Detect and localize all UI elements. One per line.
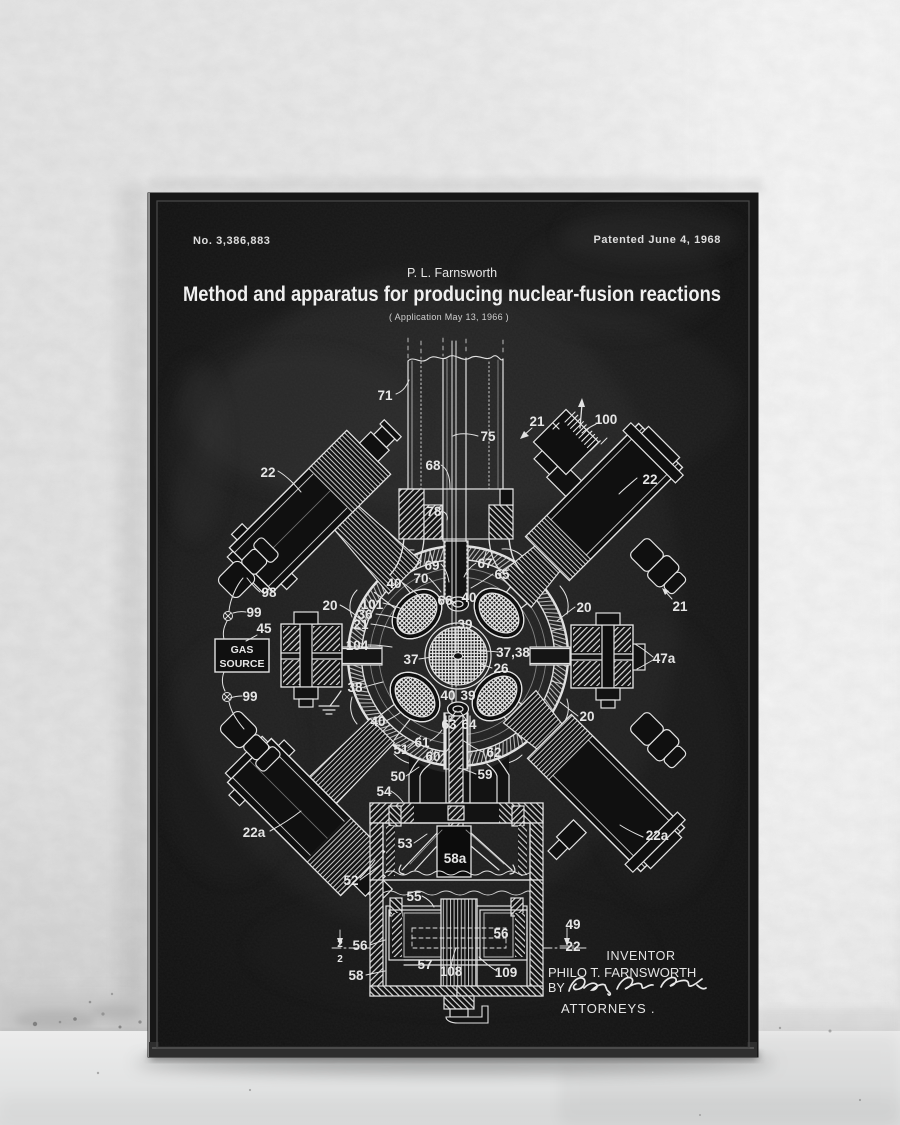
svg-text:104: 104 — [346, 638, 369, 653]
svg-text:65: 65 — [494, 567, 510, 582]
svg-text:71: 71 — [377, 388, 393, 403]
svg-text:Patented June 4, 1968: Patented June 4, 1968 — [593, 234, 721, 246]
svg-text:P. L. Farnsworth: P. L. Farnsworth — [407, 266, 497, 280]
svg-text:54: 54 — [376, 784, 392, 799]
svg-text:20: 20 — [579, 709, 594, 724]
svg-text:70: 70 — [413, 571, 428, 586]
svg-text:63: 63 — [441, 717, 457, 732]
svg-text:49: 49 — [565, 917, 580, 932]
svg-text:2: 2 — [337, 954, 343, 965]
svg-text:58a: 58a — [444, 851, 467, 866]
svg-text:68: 68 — [425, 458, 441, 473]
svg-text:37,38: 37,38 — [496, 645, 530, 660]
svg-text:40: 40 — [370, 714, 385, 729]
svg-text:39: 39 — [457, 617, 472, 632]
svg-text:66: 66 — [437, 593, 453, 608]
svg-text:56: 56 — [352, 938, 368, 953]
svg-text:55: 55 — [406, 889, 422, 904]
svg-text:40: 40 — [440, 688, 455, 703]
svg-text:75: 75 — [480, 429, 496, 444]
svg-text:61: 61 — [414, 735, 430, 750]
svg-text:45: 45 — [256, 621, 272, 636]
svg-text:51: 51 — [393, 742, 409, 757]
svg-text:No. 3,386,883: No. 3,386,883 — [193, 235, 271, 247]
svg-text:22: 22 — [642, 472, 657, 487]
svg-text:52: 52 — [343, 873, 358, 888]
svg-text:Method and apparatus for produ: Method and apparatus for producing nucle… — [183, 283, 721, 306]
svg-text:59: 59 — [477, 767, 492, 782]
svg-text:78: 78 — [426, 504, 442, 519]
svg-text:BY: BY — [548, 981, 565, 995]
svg-text:58: 58 — [348, 968, 364, 983]
svg-text:62: 62 — [486, 745, 501, 760]
svg-text:38: 38 — [347, 680, 363, 695]
svg-text:20: 20 — [322, 598, 337, 613]
svg-text:98: 98 — [261, 585, 277, 600]
svg-text:INVENTOR: INVENTOR — [606, 949, 675, 963]
svg-text:64: 64 — [461, 717, 477, 732]
svg-text:99: 99 — [242, 689, 257, 704]
svg-text:40: 40 — [461, 590, 476, 605]
svg-text:26: 26 — [493, 661, 509, 676]
svg-text:21: 21 — [529, 414, 545, 429]
svg-text:53: 53 — [397, 836, 413, 851]
svg-text:GAS: GAS — [231, 644, 254, 656]
svg-text:99: 99 — [246, 605, 261, 620]
svg-text:ATTORNEYS .: ATTORNEYS . — [561, 1001, 655, 1016]
svg-text:22a: 22a — [243, 825, 266, 840]
svg-text:37: 37 — [403, 652, 418, 667]
svg-text:100: 100 — [595, 412, 618, 427]
svg-text:20: 20 — [576, 600, 591, 615]
svg-text:2: 2 — [337, 939, 343, 950]
svg-text:108: 108 — [440, 964, 463, 979]
svg-text:( Application May 13, 1966 ): ( Application May 13, 1966 ) — [389, 312, 509, 322]
svg-text:109: 109 — [495, 965, 518, 980]
svg-text:39: 39 — [460, 688, 475, 703]
svg-text:21: 21 — [672, 599, 688, 614]
svg-text:47a: 47a — [653, 651, 676, 666]
svg-text:60: 60 — [425, 749, 440, 764]
svg-text:SOURCE: SOURCE — [220, 658, 265, 670]
svg-text:22: 22 — [260, 465, 275, 480]
svg-text:50: 50 — [390, 769, 405, 784]
svg-text:22: 22 — [565, 939, 580, 954]
svg-text:40: 40 — [386, 576, 401, 591]
svg-text:67: 67 — [477, 556, 492, 571]
svg-text:56: 56 — [493, 926, 509, 941]
svg-text:22a: 22a — [646, 828, 669, 843]
svg-text:21: 21 — [353, 617, 369, 632]
svg-text:57: 57 — [417, 957, 432, 972]
